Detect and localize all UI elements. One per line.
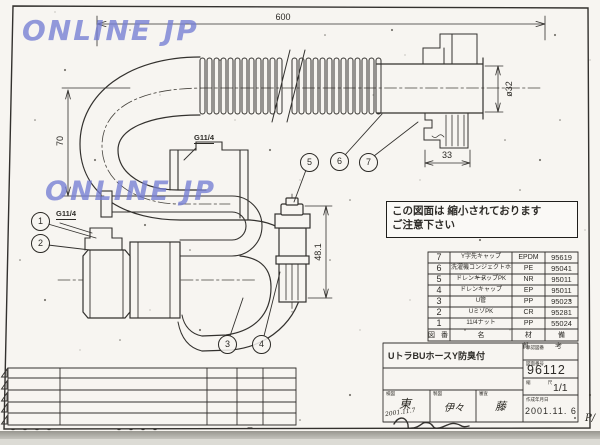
- dim-left-height: 70: [55, 136, 65, 146]
- parts-cell-number: 95619: [545, 252, 578, 263]
- drawing-sheet: ONLINE JP ONLINE JP 600 70 ø32 33 48.1 G…: [0, 0, 600, 445]
- header-name: 名: [450, 330, 512, 341]
- note-line1: この図面は 縮小されております: [392, 204, 572, 218]
- parts-cell-no: 6: [428, 263, 450, 274]
- page-mark: P/: [585, 413, 595, 424]
- parts-cell-name: ドレンキャップPK: [450, 274, 512, 285]
- parts-cell-name: Y字先キャップ: [450, 252, 512, 263]
- stamp2-mark: 伊々: [444, 399, 464, 414]
- reduction-note: この図面は 縮小されております ご注意下さい: [386, 201, 578, 238]
- balloon-7: 7: [359, 153, 378, 172]
- balloon-4: 4: [252, 335, 271, 354]
- approval-label: 承認図番: [526, 345, 544, 351]
- right-fitting: [377, 34, 483, 119]
- branch-port: [275, 198, 310, 302]
- revision-grid: [2, 368, 297, 430]
- tip-cap: [424, 113, 468, 148]
- corrugated-hose: [200, 58, 381, 114]
- parts-cell-material: PP: [512, 318, 545, 329]
- balloon-6: 6: [330, 152, 349, 171]
- signature-scribble: [394, 418, 469, 428]
- balloon-1: 1: [31, 212, 50, 231]
- parts-cell-no: 7: [428, 252, 450, 263]
- thread-label-upper: G11/4: [194, 133, 214, 144]
- drawing-number: 96112: [527, 363, 566, 377]
- union-assembly: [83, 228, 180, 318]
- parts-cell-number: 55024: [545, 318, 578, 329]
- parts-cell-number: 95281: [545, 307, 578, 318]
- dim-cap-width: 33: [442, 150, 452, 160]
- parts-cell-material: CR: [512, 307, 545, 318]
- parts-cell-name: U管: [450, 296, 512, 307]
- parts-cell-no: 2: [428, 307, 450, 318]
- parts-cell-material: NR: [512, 274, 545, 285]
- parts-cell-no: 3: [428, 296, 450, 307]
- dim-overall-length: 600: [275, 12, 290, 22]
- scan-edge-band: [0, 431, 600, 439]
- balloon-2: 2: [31, 234, 50, 253]
- stamp3-mark: 藤: [495, 398, 506, 414]
- parts-cell-number: 95041: [545, 263, 578, 274]
- parts-cell-material: EP: [512, 285, 545, 296]
- drawing-title: UトラBUホースY防臭付: [388, 349, 485, 362]
- parts-cell-number: 95023: [545, 296, 578, 307]
- thread-label-lower: G11/4: [56, 209, 76, 220]
- scan-edge-band-light: [0, 439, 600, 445]
- header-no: 図 番: [428, 330, 450, 341]
- watermark-top: ONLINE JP: [22, 14, 199, 47]
- watermark-middle: ONLINE JP: [45, 176, 216, 207]
- scale-value: 1/1: [553, 382, 568, 394]
- dim-pipe-diameter: ø32: [504, 81, 514, 97]
- note-line2: ご注意下さい: [392, 218, 572, 232]
- parts-cell-number: 95011: [545, 274, 578, 285]
- stamp1-label: 検図: [386, 391, 395, 397]
- dim-branch-height: 48.1: [313, 243, 323, 261]
- stamp3-label: 審査: [479, 391, 488, 397]
- parts-cell-name: UミゾPK: [450, 307, 512, 318]
- parts-cell-number: 95011: [545, 285, 578, 296]
- parts-cell-no: 1: [428, 318, 450, 329]
- parts-cell-material: EPDM: [512, 252, 545, 263]
- stamp2-label: 製図: [433, 391, 442, 397]
- balloon-3: 3: [218, 335, 237, 354]
- balloon-5: 5: [300, 153, 319, 172]
- date-value: 2001.11. 6: [525, 406, 577, 416]
- parts-cell-no: 5: [428, 274, 450, 285]
- header-number: 備 考: [545, 330, 578, 352]
- parts-cell-name: 11/4ナット: [450, 318, 512, 329]
- parts-cell-material: PP: [512, 296, 545, 307]
- parts-cell-name: ドレンキャップ: [450, 285, 512, 296]
- parts-cell-no: 4: [428, 285, 450, 296]
- parts-cell-material: PE: [512, 263, 545, 274]
- date-label: 作成年月日: [526, 397, 549, 403]
